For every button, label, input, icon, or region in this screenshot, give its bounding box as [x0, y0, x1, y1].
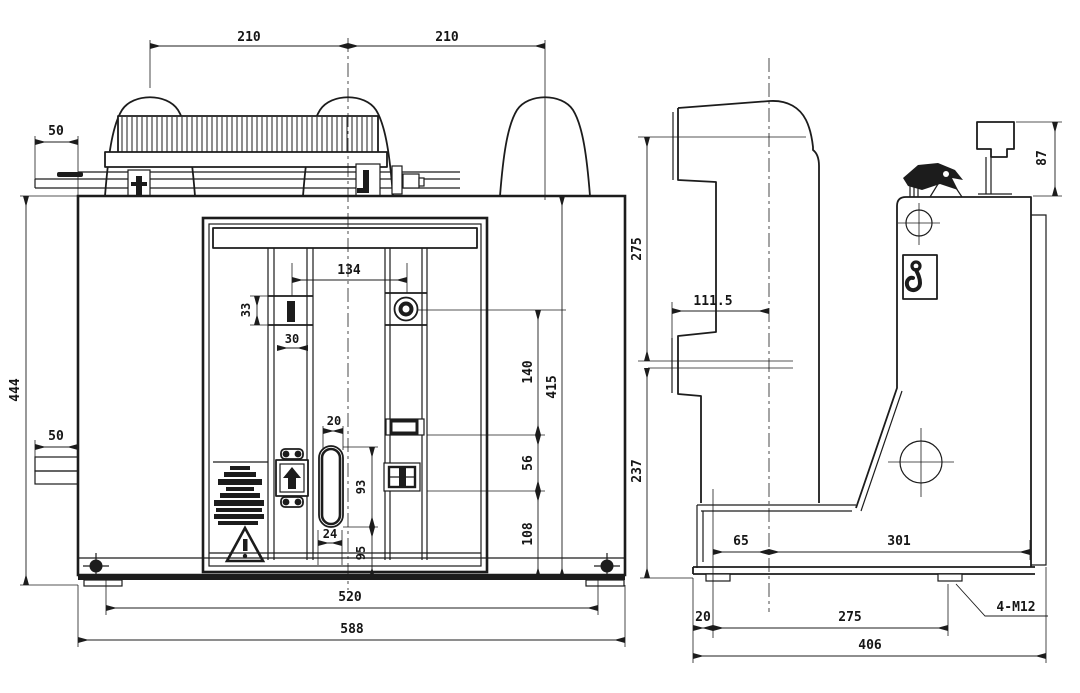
dim-pole-height-lower: 237: [630, 459, 645, 482]
side-view: 275 237 111.5 87 65 301 20 275 406 4-M12: [630, 58, 1062, 663]
panel-button-feature: [385, 293, 427, 325]
dim-foot-spacing: 275: [838, 610, 861, 625]
pole-profile: [672, 101, 856, 568]
pole-clamp-fitting-left: [128, 170, 150, 196]
dim-foot-offset: 20: [695, 610, 711, 625]
side-dimension-labels: 275 237 111.5 87 65 301 20 275 406 4-M12: [630, 150, 1050, 653]
dim-body-height: 444: [8, 378, 23, 402]
up-arrow-icon: [276, 449, 308, 507]
pole-clamp-fitting-right: [392, 166, 424, 194]
rear-panel: [1031, 215, 1046, 565]
operation-counter-window: [384, 463, 420, 491]
front-view: 210 210 50 444 50 134 33 30 20 93 24 95 …: [8, 30, 625, 647]
foot-pad-right: [586, 580, 624, 586]
dim-right-lower: 108: [521, 522, 536, 546]
heatsink-fin-band: [105, 116, 387, 167]
crosshair-datum-lower: [888, 428, 954, 497]
dim-keyhole-width-top: 20: [327, 414, 341, 428]
charge-indicator-window: [386, 419, 424, 435]
crosshair-datum-upper: [898, 203, 940, 245]
dim-top-span-right: 210: [435, 30, 459, 45]
dim-rail-height: 87: [1035, 150, 1050, 166]
lifting-hook-icon: [903, 255, 937, 299]
technical-drawing: 210 210 50 444 50 134 33 30 20 93 24 95 …: [0, 0, 1080, 693]
dim-top-span-left: 210: [237, 30, 261, 45]
side-bracket-lower-left: [35, 457, 78, 484]
keyhole-slot: [319, 446, 343, 527]
dim-body-inner-height: 415: [545, 375, 560, 398]
panel-header-band: [213, 228, 477, 248]
arm-weld-detail: [57, 172, 83, 177]
engineering-drawing-page: 210 210 50 444 50 134 33 30 20 93 24 95 …: [0, 0, 1080, 693]
bolt-callout-label: 4-M12: [996, 600, 1035, 615]
dim-arm-width-top: 50: [48, 124, 64, 139]
dim-right-upper: 140: [521, 360, 536, 384]
latch-mechanism: [903, 163, 963, 197]
dim-arm-width-bottom: 50: [48, 429, 64, 444]
foot-pad-left: [84, 580, 122, 586]
dim-overall-width: 588: [340, 622, 364, 637]
dim-slot-width-small: 30: [285, 332, 299, 346]
dim-overall-depth: 406: [858, 638, 882, 653]
panel-slot-feature: [268, 296, 313, 325]
warning-triangle-icon: [227, 528, 263, 561]
dim-pole-height-upper: 275: [630, 237, 645, 260]
dim-keyhole-width-bottom: 24: [323, 527, 337, 541]
top-support-rails: [35, 164, 460, 196]
dim-panel-hole-spacing: 134: [337, 263, 361, 278]
dim-pole-depth: 111.5: [693, 294, 732, 309]
rail-bracket: [977, 122, 1014, 194]
side-foot-pad-front: [706, 574, 730, 581]
dim-right-middle: 56: [521, 455, 536, 471]
dim-keyhole-height: 93: [354, 480, 368, 494]
pole-clamp-fitting-center: [356, 164, 380, 196]
dim-base-front-offset: 65: [733, 534, 749, 549]
fin-base-plate: [105, 152, 387, 167]
dim-base-rear-span: 301: [887, 534, 911, 549]
side-construction-lines: [638, 58, 1062, 663]
nameplate-label: [214, 466, 264, 525]
mechanism-housing: [693, 122, 1046, 581]
side-foot-pad-rear: [938, 574, 962, 581]
dim-slot-height-small: 33: [239, 303, 253, 317]
dim-foot-spacing: 520: [338, 590, 362, 605]
dim-keyhole-to-base: 95: [354, 546, 368, 560]
